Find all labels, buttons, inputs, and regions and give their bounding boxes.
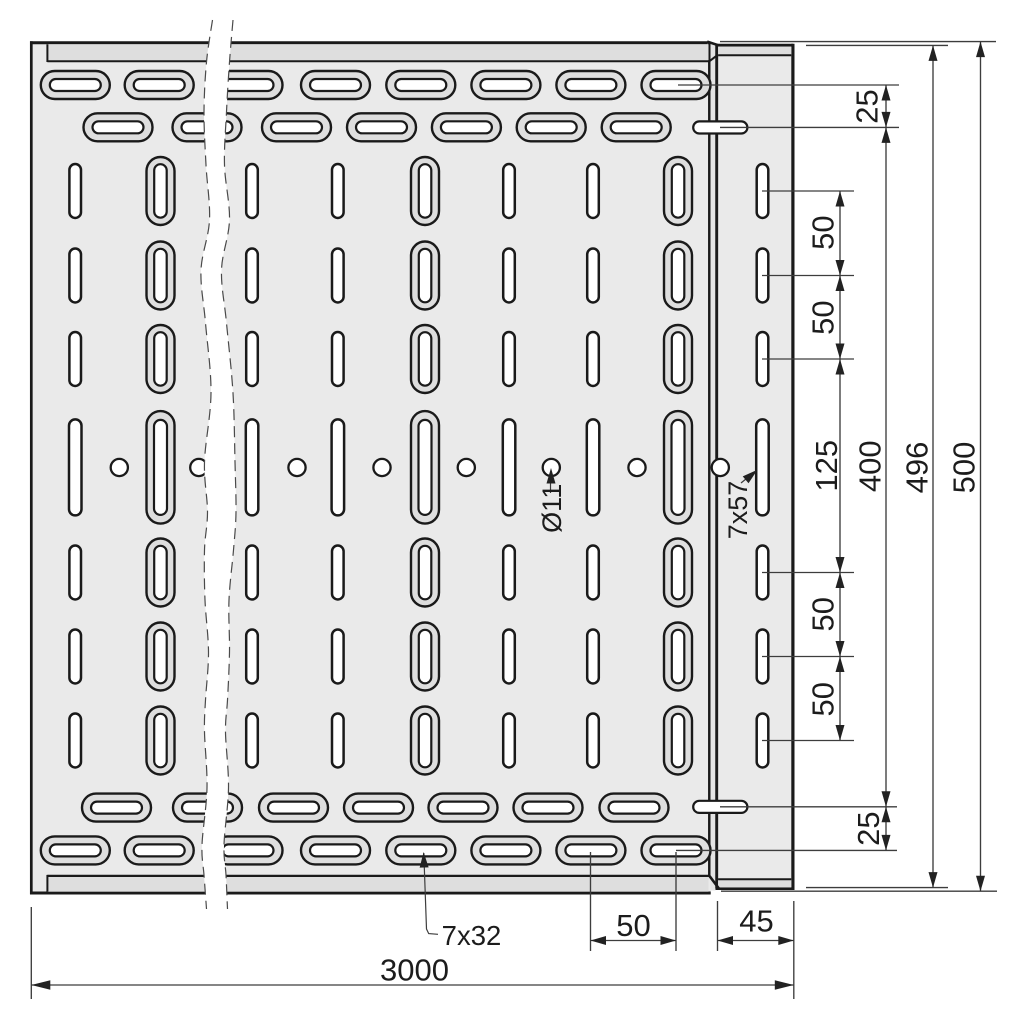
svg-text:45: 45 (739, 904, 773, 939)
svg-text:25: 25 (850, 89, 885, 123)
svg-text:7x32: 7x32 (442, 920, 502, 951)
svg-text:7x57: 7x57 (723, 481, 753, 540)
svg-text:3000: 3000 (380, 953, 449, 988)
svg-text:50: 50 (806, 682, 841, 716)
svg-text:25: 25 (851, 811, 886, 845)
svg-text:125: 125 (809, 440, 844, 492)
svg-text:500: 500 (947, 442, 982, 494)
svg-text:Ø11: Ø11 (537, 484, 567, 533)
svg-text:496: 496 (900, 442, 935, 494)
svg-text:50: 50 (806, 215, 841, 249)
svg-text:50: 50 (806, 597, 841, 631)
svg-text:50: 50 (616, 908, 650, 943)
svg-text:400: 400 (853, 440, 888, 492)
svg-text:50: 50 (806, 300, 841, 334)
